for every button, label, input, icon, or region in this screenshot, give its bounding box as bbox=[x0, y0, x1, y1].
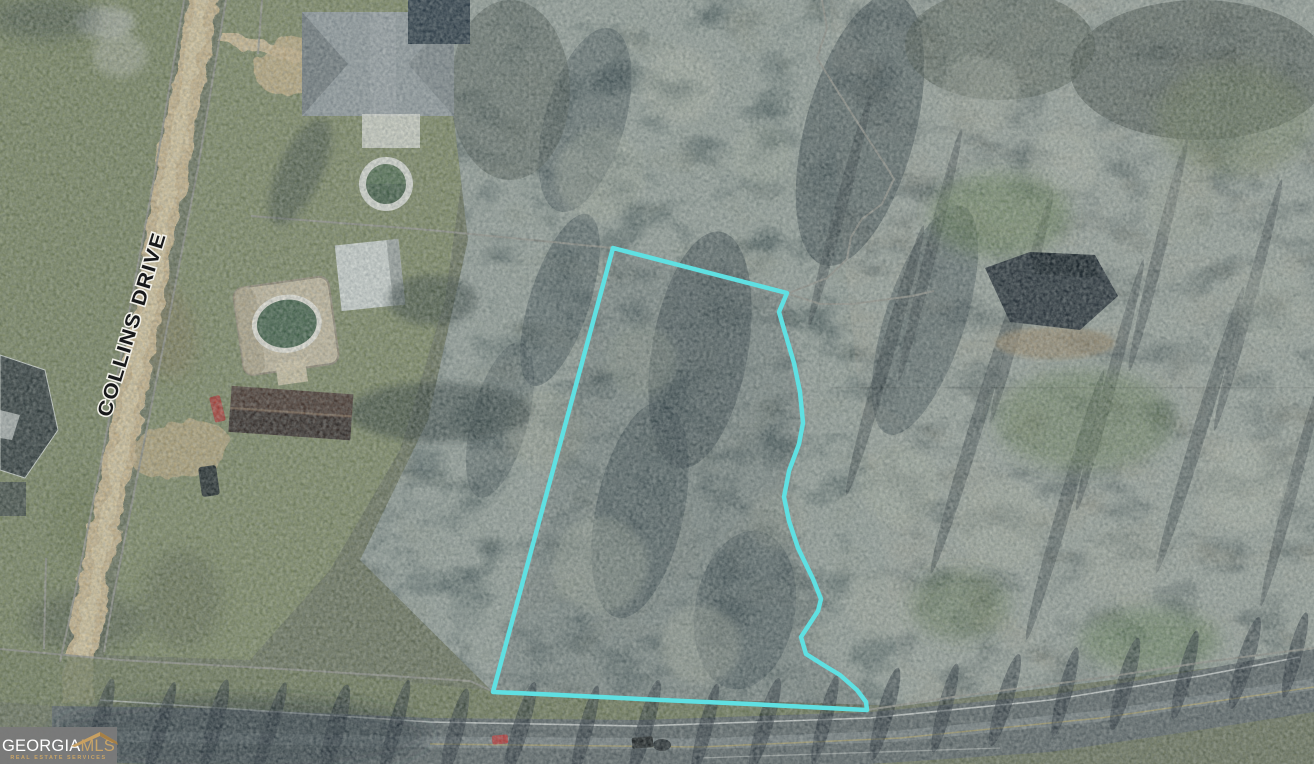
logo-roof-icon bbox=[71, 731, 121, 747]
satellite-imagery: COLLINS DRIVE bbox=[0, 0, 1314, 764]
logo-tagline: REAL ESTATE SERVICES bbox=[10, 755, 106, 761]
grain-light bbox=[0, 0, 1314, 764]
aerial-map: COLLINS DRIVE GEORGIAMLS REAL ESTATE SER… bbox=[0, 0, 1314, 764]
logo-brand: GEORGIAMLS bbox=[2, 738, 115, 755]
georgia-mls-logo: GEORGIAMLS REAL ESTATE SERVICES bbox=[0, 727, 117, 764]
logo-brand-georgia: GEORGIA bbox=[2, 737, 80, 755]
